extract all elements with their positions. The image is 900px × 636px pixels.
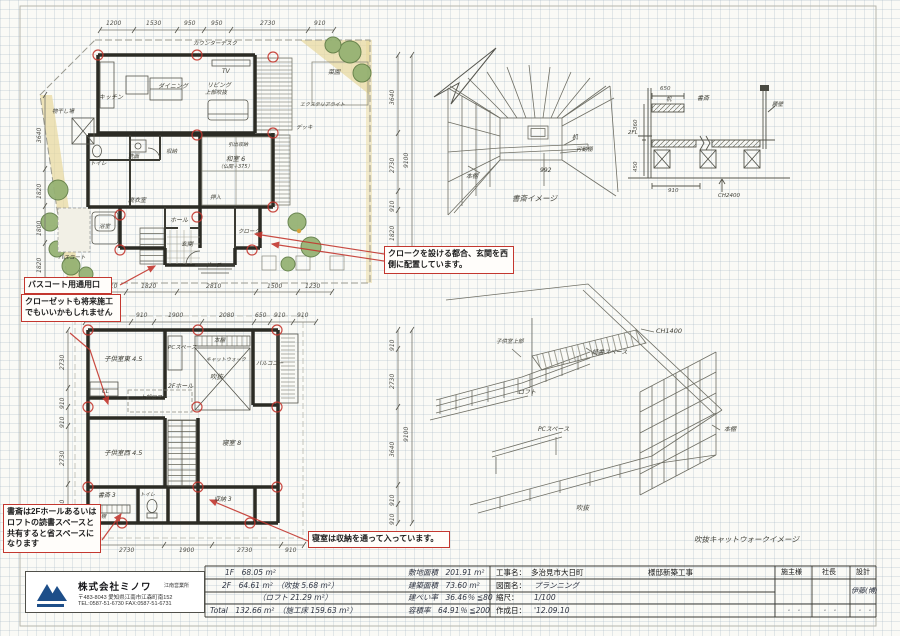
dim-1f-right-1: 2730 [390, 158, 396, 173]
dim-1f-right-0: 3640 [390, 90, 396, 105]
dim-2f-left-1: 910 [60, 398, 66, 409]
dim-2f-right-0: 910 [390, 340, 396, 351]
dim-1f-left-2: 1800 [37, 221, 43, 236]
col-president: 社長 [822, 569, 836, 576]
dim-1f-bottom-3: 1500 [267, 284, 282, 290]
room-label-washitsu: 和室 6 [226, 156, 245, 163]
annotation-study: 書斎は2Fホールあるいはロフトの読書スペースと共有すると省スペースになります [3, 504, 101, 553]
dim-2f-top-3: 2080 [219, 313, 234, 319]
section-study-label: 書斎 [697, 96, 709, 102]
dim-2f-top-4: 650 [255, 313, 266, 319]
project-name-value: 多治見市大日町 [531, 569, 584, 577]
dim-2f-right-3: 910 [390, 495, 396, 506]
room-label-drying-area: 物干し場 [52, 110, 74, 116]
scale-value: 1/100 [534, 594, 556, 602]
room-label-deck: デッキ [296, 126, 313, 132]
area-1f: 1F 68.05 m² [225, 569, 276, 577]
room-label-storage-2f: 収納 3 [214, 497, 232, 503]
dim-2f-bottom-3: 910 [285, 548, 296, 554]
room-label-closet-cl: CL [102, 390, 109, 396]
stat-coverage-ratio: 建ぺい率 36.46％ ≦80 [408, 594, 493, 602]
section-dim-650: 650 [660, 87, 671, 93]
catwalk-reading-label: 読書スペース [592, 350, 627, 356]
company-branch: 江南営業所 [164, 582, 189, 589]
stamp-marks-owner: ・ ・ [786, 609, 801, 614]
area-total: Total 132.66 m² （施工床 159.63 m²） [210, 607, 357, 615]
annotation-bedroom: 寝室は収納を通って入っています。 [308, 531, 450, 548]
dim-1f-left-3: 1820 [37, 258, 43, 273]
dim-1f-right-total: 9100 [404, 153, 410, 168]
sketch-study-perspective [448, 65, 618, 215]
room-label-living: リビング [207, 83, 231, 89]
sketch-study-bookshelf-label: 本棚 [466, 174, 478, 180]
room-label-bathcourt: バスコート [58, 256, 86, 262]
catwalk-kids-top-label: 子供室上部 [496, 340, 524, 346]
room-label-counter-desk: カウンターデスク [193, 42, 237, 48]
scale-label: 縮尺： [496, 594, 519, 602]
room-label-garden-plot: 菜園 [328, 70, 340, 76]
room-label-study-2f: 書斎 3 [98, 493, 116, 499]
project-name-label: 工事名： [496, 569, 526, 577]
stat-site-area: 敷地面積 201.91 m² [408, 569, 484, 577]
dim-2f-bottom-0: 2730 [119, 548, 134, 554]
dim-1f-bottom-1: 1820 [141, 284, 156, 290]
company-title-box: 株式会社ミノワ 江南営業所 〒483-8043 愛知県江南市江森町南152 TE… [25, 571, 205, 613]
dim-2f-right-2: 3640 [390, 442, 396, 457]
room-label-tv: TV [222, 69, 230, 75]
dim-1f-right-3: 1820 [390, 226, 396, 241]
dim-1f-left-0: 3640 [37, 128, 43, 143]
room-label-genkan: 玄関 [181, 242, 193, 248]
room-label-cloak: クローク [238, 230, 260, 236]
dim-1f-left-1: 1820 [37, 184, 43, 199]
catwalk-void-label: 吹抜 [576, 505, 589, 512]
room-label-exterior-light: エクステリアライト [300, 103, 345, 108]
company-tel: TEL:0587-51-6730 FAX:0587-51-6731 [78, 601, 172, 607]
room-label-bedroom: 寝室 8 [222, 440, 241, 447]
room-label-void: 吹抜 [210, 374, 223, 381]
room-label-kids-west: 子供室西 4.5 [104, 450, 142, 457]
drawing-name-label: 図面名： [496, 582, 526, 590]
room-label-catwalk: キャットウォーク [206, 358, 246, 363]
room-label-kids-east: 子供室東 4.5 [104, 356, 142, 363]
section-2fl-label: 2FL [628, 131, 638, 137]
room-label-porch: ポーチ [205, 264, 222, 270]
room-label-dining: ダイニング [158, 84, 188, 90]
section-desk-label: 机 [666, 98, 672, 104]
room-label-bookshelf-top: 本棚 [214, 339, 225, 345]
col-owner: 施主様 [781, 569, 802, 576]
stamp-marks-design: ・ ・ [857, 609, 872, 614]
date-label: 作成日： [496, 607, 526, 615]
stat-floor-ratio: 容積率 64.91％ ≦200 [408, 607, 490, 615]
dim-1f-bottom-4: 1230 [305, 284, 320, 290]
room-label-storage-1f: 収納 [166, 150, 177, 156]
sketch-catwalk-perspective [430, 284, 722, 513]
catwalk-pc-label: PCスペース [538, 427, 569, 433]
dim-1f-top-5: 910 [314, 21, 325, 27]
dim-1f-top-1: 1530 [146, 21, 161, 27]
catwalk-loft-label: ロフト [518, 390, 536, 396]
room-label-hall-1f: ホール [170, 218, 188, 224]
room-label-drawer-storage: 引出収納 [228, 143, 248, 148]
stat-building-area: 建築面積 73.60 m² [408, 582, 480, 590]
dim-1f-top-2: 950 [184, 21, 195, 27]
section-dim-910: 910 [668, 189, 679, 195]
room-label-balcony: バルコニー [256, 362, 283, 368]
section-ch-label: CH2400 [718, 194, 740, 200]
dim-1f-top-4: 2730 [260, 21, 275, 27]
dim-2f-bottom-1: 1900 [179, 548, 194, 554]
date-value: '12.09.10 [534, 607, 569, 615]
minowa-logo [34, 578, 74, 610]
designer-name: 伊藤(博) [851, 588, 877, 595]
sketch-study-desk-label: 机 [572, 135, 578, 141]
dim-2f-right-1: 2730 [390, 374, 396, 389]
dim-1f-top-3: 950 [211, 21, 222, 27]
room-label-hall-2f: 2Fホール [168, 384, 193, 390]
dim-1f-top-0: 1200 [106, 21, 121, 27]
room-label-washroom: 洗面 [128, 155, 139, 161]
room-label-kitchen: キッチン [99, 95, 123, 101]
room-label-dressing: 脱衣室 [128, 198, 146, 204]
stamp-marks-president: ・ ・ [822, 609, 837, 614]
room-label-toilet-1f: トイレ [90, 162, 107, 168]
catwalk-caption: 吹抜キャットウォークイメージ [694, 536, 799, 544]
room-label-pc-space: PCスペース [168, 346, 197, 352]
room-label-toilet-2f: トイレ [140, 493, 155, 498]
company-name: 株式会社ミノワ [78, 579, 152, 593]
annotation-closet: クローゼットも将来施工でもいいかもしれません [21, 294, 121, 322]
section-waist-wall-label: 腰壁 [772, 103, 783, 109]
area-loft: （ロフト 21.29 m²） [258, 594, 332, 602]
room-label-bath: 浴室 [99, 225, 110, 231]
dim-2f-right-4: 910 [390, 514, 396, 525]
room-label-washitsu-note: （仏間＋375） [218, 165, 253, 170]
company-address: 〒483-8043 愛知県江南市江森町南152 [78, 593, 172, 601]
annotation-cloak: クロークを設ける都合、玄関を西側に配置しています。 [384, 246, 514, 274]
room-label-loft-above: 上部ロフト [140, 396, 168, 402]
dim-2f-left-3: 2730 [60, 451, 66, 466]
section-dim-450: 450 [634, 162, 640, 173]
room-label-oshiire: 押入 [210, 196, 221, 202]
dim-1f-right-2: 910 [390, 201, 396, 212]
dim-2f-top-5: 910 [274, 313, 285, 319]
drawing-sheet: 1200 1530 950 950 2730 910 3640 1820 180… [0, 0, 900, 636]
catwalk-ch1400-label: CH1400 [656, 328, 682, 335]
drawing-name-value: プランニング [534, 582, 579, 590]
section-dim-360: 360 [634, 120, 640, 131]
room-label-living-void: 上部吹抜 [205, 91, 227, 97]
dim-2f-left-0: 2730 [60, 355, 66, 370]
annotation-bathcourt: バスコート用通用口 [24, 277, 112, 294]
catwalk-bookshelf-label: 本棚 [724, 427, 736, 433]
dim-2f-bottom-2: 2730 [237, 548, 252, 554]
dim-2f-top-2: 1900 [168, 313, 183, 319]
dim-2f-left-2: 910 [60, 417, 66, 428]
sketch-study-width-992: 992 [540, 168, 551, 174]
dim-2f-top-1: 910 [136, 313, 147, 319]
sketch-study-movable-shelf-label: 可動棚 [576, 148, 593, 154]
dim-2f-top-6: 910 [297, 313, 308, 319]
dim-2f-right-total: 9100 [404, 427, 410, 442]
sketch-study-caption: 書斎イメージ [512, 195, 557, 203]
col-design: 設計 [856, 569, 870, 576]
area-2f: 2F 64.61 m² （吹抜 5.68 m²） [222, 582, 338, 590]
project-name-suffix: 様邸新築工事 [648, 569, 693, 577]
dim-1f-bottom-2: 2810 [206, 284, 221, 290]
